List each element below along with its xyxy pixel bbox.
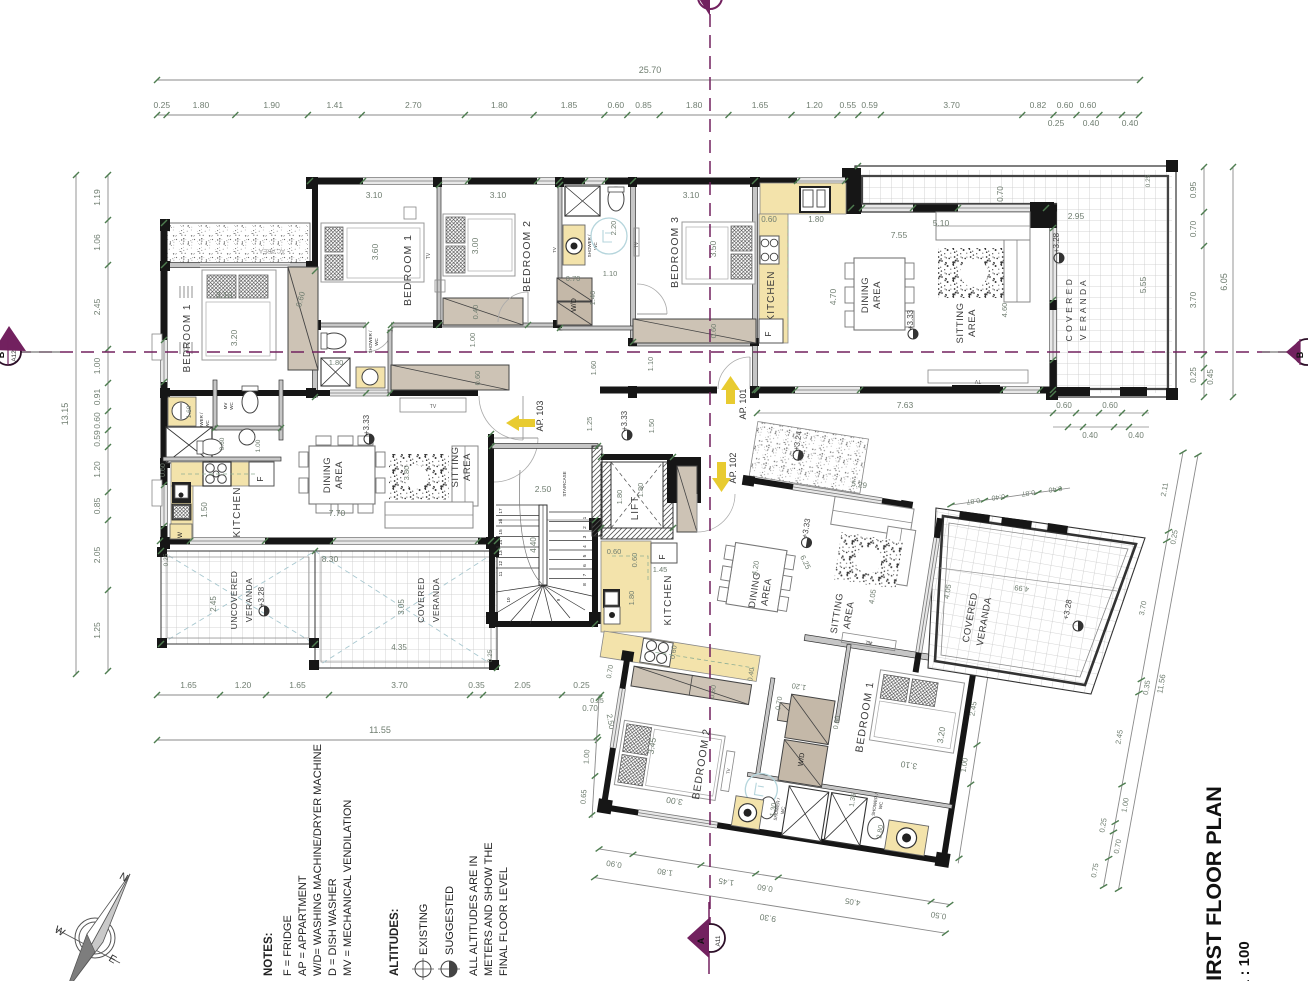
- svg-text:AP = APPARTMENT: AP = APPARTMENT: [297, 875, 309, 976]
- svg-text:+3.33: +3.33: [362, 414, 371, 435]
- svg-text:W/D= WASHING MACHINE/DRYER MAC: W/D= WASHING MACHINE/DRYER MACHINE: [312, 744, 324, 976]
- svg-text:KITCHEN: KITCHEN: [663, 575, 674, 626]
- svg-text:D = DISH WASHER: D = DISH WASHER: [327, 878, 339, 976]
- svg-text:DINING: DINING: [322, 457, 333, 493]
- svg-text:0.25: 0.25: [487, 649, 494, 662]
- svg-text:1.50: 1.50: [647, 419, 656, 434]
- svg-text:C O V E R E D: C O V E R E D: [1064, 279, 1074, 342]
- svg-text:NOTES:: NOTES:: [263, 933, 275, 976]
- svg-text:0.25: 0.25: [1048, 118, 1065, 128]
- svg-text:0.60: 0.60: [761, 215, 777, 224]
- svg-text:1.20: 1.20: [92, 461, 102, 478]
- svg-text:4.35: 4.35: [391, 643, 407, 652]
- svg-text:0.45: 0.45: [1206, 369, 1215, 385]
- svg-text:1.50: 1.50: [200, 502, 209, 518]
- svg-text:0.25: 0.25: [163, 553, 170, 566]
- svg-text:2.45: 2.45: [209, 596, 218, 612]
- svg-text:B: B: [1295, 351, 1305, 358]
- svg-text:0.25: 0.25: [154, 100, 171, 110]
- svg-text:WC: WC: [229, 402, 234, 410]
- svg-text:0.60: 0.60: [1080, 100, 1097, 110]
- svg-text:8: 8: [582, 583, 588, 586]
- svg-text:TV: TV: [725, 768, 731, 774]
- svg-text:11: 11: [498, 571, 504, 576]
- svg-text:DINING: DINING: [860, 277, 871, 313]
- svg-text:1.25: 1.25: [92, 622, 102, 639]
- svg-text:2: 2: [582, 526, 588, 529]
- svg-text:AREA: AREA: [462, 453, 473, 481]
- svg-text:0.60: 0.60: [1102, 401, 1118, 410]
- svg-text:1.10: 1.10: [646, 357, 655, 372]
- svg-text:6: 6: [582, 564, 588, 567]
- svg-text:+3.28: +3.28: [1052, 232, 1061, 253]
- svg-text:0.95: 0.95: [1188, 181, 1198, 198]
- svg-text:0.25: 0.25: [1189, 367, 1198, 383]
- svg-text:8.30: 8.30: [322, 554, 339, 564]
- svg-text:BEDROOM 3: BEDROOM 3: [669, 216, 681, 288]
- svg-text:W/D: W/D: [571, 298, 578, 312]
- svg-text:AC AREA: AC AREA: [259, 247, 285, 253]
- svg-text:2.05: 2.05: [92, 546, 102, 563]
- svg-text:1.80: 1.80: [808, 215, 824, 224]
- svg-text:12: 12: [498, 561, 504, 567]
- svg-text:0.25: 0.25: [1145, 174, 1152, 187]
- svg-text:0.55: 0.55: [840, 100, 857, 110]
- svg-text:1.80: 1.80: [686, 100, 703, 110]
- svg-text:F: F: [256, 476, 265, 481]
- svg-text:7.70: 7.70: [329, 508, 346, 518]
- svg-text:7.55: 7.55: [891, 230, 908, 240]
- svg-text:0.91: 0.91: [92, 388, 102, 405]
- svg-text:1.90: 1.90: [263, 100, 280, 110]
- svg-text:3.05: 3.05: [397, 599, 406, 615]
- svg-text:COVERED: COVERED: [416, 577, 426, 623]
- svg-text:25.70: 25.70: [639, 65, 662, 75]
- svg-text:0.60: 0.60: [1056, 401, 1072, 410]
- svg-text:A11: A11: [715, 935, 722, 946]
- svg-text:+3.33: +3.33: [906, 309, 915, 330]
- svg-text:7.63: 7.63: [897, 400, 914, 410]
- svg-text:KITCHEN: KITCHEN: [232, 487, 243, 538]
- svg-text:1.06: 1.06: [92, 234, 102, 251]
- svg-text:1.00: 1.00: [468, 333, 477, 348]
- svg-text:F = FRIDGE: F = FRIDGE: [282, 915, 294, 976]
- svg-text:0.40: 0.40: [471, 305, 480, 320]
- svg-text:13: 13: [498, 550, 504, 556]
- svg-text:1.60: 1.60: [186, 405, 193, 418]
- svg-text:0.40: 0.40: [1128, 431, 1144, 440]
- svg-text:1.80: 1.80: [615, 490, 624, 505]
- svg-text:SHOWER /: SHOWER /: [368, 330, 373, 354]
- svg-text:1.41: 1.41: [327, 100, 344, 110]
- svg-text:0.60: 0.60: [219, 437, 226, 450]
- svg-text:0.59: 0.59: [92, 430, 102, 447]
- svg-text:1 : 100: 1 : 100: [1236, 941, 1253, 981]
- svg-text:0.40: 0.40: [1083, 118, 1100, 128]
- svg-text:0.40: 0.40: [1082, 431, 1098, 440]
- svg-text:7: 7: [582, 573, 588, 576]
- svg-text:FINAL FLOOR LEVEL: FINAL FLOOR LEVEL: [498, 867, 510, 976]
- svg-text:1.20: 1.20: [235, 680, 252, 690]
- svg-text:1.00: 1.00: [255, 439, 262, 452]
- svg-text:0.60: 0.60: [1057, 100, 1074, 110]
- svg-text:+3.28: +3.28: [257, 586, 266, 607]
- svg-text:4: 4: [582, 545, 588, 548]
- svg-text:1.20: 1.20: [806, 100, 823, 110]
- svg-text:3.10: 3.10: [683, 190, 700, 200]
- svg-text:11.55: 11.55: [369, 725, 391, 735]
- svg-text:EXISTING: EXISTING: [418, 904, 430, 955]
- svg-text:BEDROOM 1: BEDROOM 1: [402, 234, 414, 306]
- svg-text:STAIRCASE: STAIRCASE: [562, 471, 567, 496]
- svg-text:16: 16: [498, 519, 504, 525]
- svg-text:3: 3: [582, 535, 588, 538]
- svg-text:ALL ALTITUDES ARE IN: ALL ALTITUDES ARE IN: [468, 856, 480, 976]
- svg-text:1.65: 1.65: [180, 680, 197, 690]
- svg-text:0.60: 0.60: [473, 371, 482, 386]
- svg-text:BEDROOM 1: BEDROOM 1: [182, 303, 193, 372]
- svg-text:4.60: 4.60: [1000, 303, 1009, 318]
- svg-text:3.10: 3.10: [490, 190, 507, 200]
- svg-text:0.70: 0.70: [1188, 220, 1198, 237]
- svg-text:AREA: AREA: [334, 461, 345, 489]
- svg-text:0.25: 0.25: [573, 680, 590, 690]
- svg-text:SITTING: SITTING: [450, 447, 461, 488]
- svg-text:5.55: 5.55: [1138, 276, 1148, 293]
- svg-text:FIRST FLOOR PLAN: FIRST FLOOR PLAN: [1202, 786, 1226, 981]
- svg-text:A12: A12: [11, 350, 18, 362]
- svg-text:3.80: 3.80: [402, 466, 411, 481]
- svg-text:2.70: 2.70: [405, 100, 422, 110]
- svg-text:3.60: 3.60: [370, 243, 380, 260]
- svg-text:W: W: [177, 531, 184, 538]
- svg-text:+3.33: +3.33: [620, 410, 629, 431]
- svg-text:B: B: [0, 351, 6, 358]
- svg-text:0.60: 0.60: [608, 100, 625, 110]
- svg-text:UNCOVERED: UNCOVERED: [229, 571, 239, 630]
- svg-text:AREA: AREA: [872, 281, 883, 309]
- svg-text:LIFT: LIFT: [630, 496, 641, 521]
- svg-text:6.05: 6.05: [1219, 273, 1229, 291]
- svg-text:0.70: 0.70: [582, 704, 598, 713]
- svg-text:VERANDA: VERANDA: [431, 578, 441, 623]
- svg-text:0.60: 0.60: [160, 463, 167, 477]
- svg-text:WC: WC: [374, 338, 379, 346]
- svg-text:V E R A N D A: V E R A N D A: [1078, 280, 1088, 340]
- svg-text:1.00: 1.00: [582, 749, 592, 764]
- svg-text:AREA: AREA: [967, 309, 978, 337]
- svg-text:METERS AND SHOW THE: METERS AND SHOW THE: [483, 842, 495, 976]
- svg-text:1.80: 1.80: [193, 100, 210, 110]
- svg-text:1.19: 1.19: [92, 189, 102, 206]
- svg-text:1.85: 1.85: [561, 100, 578, 110]
- svg-text:0.82: 0.82: [1030, 100, 1047, 110]
- svg-text:0.60: 0.60: [92, 412, 102, 429]
- svg-text:4.40: 4.40: [529, 537, 538, 553]
- svg-text:ALTITUDES:: ALTITUDES:: [389, 908, 401, 976]
- svg-text:0.85: 0.85: [635, 100, 652, 110]
- svg-text:1.80: 1.80: [491, 100, 508, 110]
- svg-text:TV: TV: [430, 404, 437, 410]
- svg-text:0.70: 0.70: [996, 186, 1005, 202]
- svg-text:1.65: 1.65: [289, 680, 306, 690]
- svg-text:MV = MECHANICAL VENDILATION: MV = MECHANICAL VENDILATION: [342, 800, 354, 976]
- svg-text:3.20: 3.20: [229, 329, 239, 346]
- svg-text:0.59: 0.59: [861, 100, 878, 110]
- svg-text:0.60: 0.60: [607, 547, 622, 556]
- svg-text:VERANDA: VERANDA: [244, 578, 254, 623]
- svg-text:10: 10: [506, 597, 511, 603]
- svg-text:2.50: 2.50: [535, 484, 552, 494]
- svg-text:3.10: 3.10: [216, 290, 233, 300]
- svg-text:0.60: 0.60: [630, 553, 639, 568]
- svg-text:4.70: 4.70: [828, 288, 838, 305]
- svg-text:3.70: 3.70: [943, 100, 960, 110]
- svg-text:1.65: 1.65: [752, 100, 769, 110]
- svg-text:1.45: 1.45: [653, 565, 668, 574]
- svg-text:0.65: 0.65: [579, 789, 589, 804]
- svg-text:A: A: [696, 937, 706, 944]
- svg-text:TV: TV: [974, 378, 981, 384]
- svg-text:BEDROOM 2: BEDROOM 2: [521, 220, 533, 292]
- svg-text:0.40: 0.40: [1122, 118, 1139, 128]
- svg-text:1: 1: [582, 516, 588, 519]
- svg-text:5: 5: [582, 554, 588, 557]
- svg-text:0.35: 0.35: [468, 680, 485, 690]
- svg-text:1.25: 1.25: [585, 417, 594, 432]
- svg-text:2.45: 2.45: [92, 298, 102, 315]
- svg-text:1.00: 1.00: [92, 357, 102, 374]
- svg-text:3.70: 3.70: [391, 680, 408, 690]
- svg-text:1.80: 1.80: [636, 483, 645, 498]
- svg-text:15: 15: [498, 529, 504, 535]
- svg-text:1.80: 1.80: [627, 591, 636, 606]
- svg-text:F: F: [764, 331, 773, 336]
- svg-text:F: F: [658, 554, 667, 559]
- svg-text:TV: TV: [552, 247, 557, 253]
- svg-text:1.60: 1.60: [589, 361, 598, 376]
- svg-text:2.95: 2.95: [1068, 211, 1085, 221]
- svg-text:SITTING: SITTING: [955, 303, 966, 344]
- svg-text:17: 17: [498, 508, 504, 514]
- svg-text:3.10: 3.10: [366, 190, 383, 200]
- svg-text:5.10: 5.10: [933, 218, 950, 228]
- svg-text:14: 14: [498, 540, 504, 546]
- svg-text:3.70: 3.70: [1188, 291, 1198, 308]
- svg-text:AP. 101: AP. 101: [738, 389, 748, 420]
- svg-text:0.70: 0.70: [566, 274, 581, 283]
- svg-text:AP. 103: AP. 103: [535, 401, 545, 432]
- svg-text:TV: TV: [866, 640, 872, 646]
- svg-text:MV: MV: [223, 403, 228, 410]
- svg-text:KITCHEN: KITCHEN: [766, 271, 777, 322]
- svg-text:3.00: 3.00: [470, 237, 480, 254]
- svg-text:1.10: 1.10: [603, 269, 618, 278]
- svg-text:1.80: 1.80: [329, 358, 344, 367]
- svg-text:0.85: 0.85: [92, 497, 102, 514]
- svg-text:2.05: 2.05: [514, 680, 531, 690]
- svg-text:SUGGESTED: SUGGESTED: [444, 886, 456, 955]
- svg-text:13.15: 13.15: [60, 403, 70, 426]
- svg-text:TV: TV: [426, 252, 432, 259]
- svg-text:0.25: 0.25: [590, 698, 604, 705]
- svg-text:1.40: 1.40: [588, 291, 597, 306]
